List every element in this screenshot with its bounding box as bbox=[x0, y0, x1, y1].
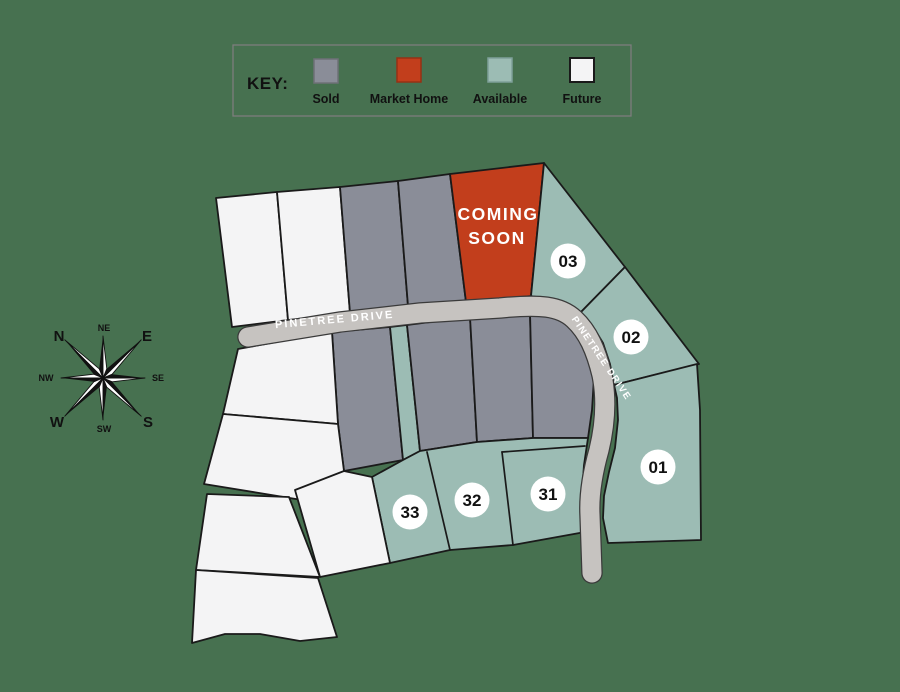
site-plan: COMING SOON PINETREE DRIVE PINETREE DRIV… bbox=[0, 0, 900, 692]
key-swatch-sold bbox=[314, 59, 338, 83]
key-title: KEY: bbox=[247, 74, 288, 93]
lot-33-number: 33 bbox=[401, 503, 420, 522]
lot-01-number: 01 bbox=[649, 458, 668, 477]
compass-ne: NE bbox=[98, 323, 111, 333]
lot-31-badge[interactable]: 31 bbox=[531, 477, 566, 512]
compass-nw: NW bbox=[39, 373, 54, 383]
key-swatch-future bbox=[570, 58, 594, 82]
compass-sw: SW bbox=[97, 424, 112, 434]
lot-coming-soon[interactable]: COMING SOON bbox=[450, 163, 544, 302]
lot-02-number: 02 bbox=[622, 328, 641, 347]
lot-32-badge[interactable]: 32 bbox=[455, 483, 490, 518]
key-label-sold: Sold bbox=[312, 92, 339, 106]
key-label-available: Available bbox=[473, 92, 527, 106]
compass-w: W bbox=[50, 414, 65, 431]
compass-e: E bbox=[142, 328, 152, 345]
coming-soon-line2: SOON bbox=[468, 228, 526, 248]
lot-33-badge[interactable]: 33 bbox=[393, 495, 428, 530]
lot-future-top-2 bbox=[277, 187, 350, 320]
compass-se: SE bbox=[152, 373, 164, 383]
coming-soon-line1: COMING bbox=[458, 204, 539, 224]
lot-sold-top-1 bbox=[340, 181, 408, 313]
lot-32-number: 32 bbox=[463, 491, 482, 510]
key-swatch-available bbox=[488, 58, 512, 82]
lot-31-number: 31 bbox=[539, 485, 558, 504]
compass-s: S bbox=[143, 414, 153, 431]
compass-star-icon bbox=[61, 336, 145, 420]
lot-03-badge[interactable]: 03 bbox=[551, 244, 586, 279]
lot-sold-mid-3 bbox=[470, 312, 533, 442]
key-label-market-home: Market Home bbox=[370, 92, 449, 106]
lot-sold-mid-2 bbox=[407, 317, 477, 451]
lot-01-badge[interactable]: 01 bbox=[641, 450, 676, 485]
lot-03-number: 03 bbox=[559, 252, 578, 271]
key-swatch-market-home bbox=[397, 58, 421, 82]
key-label-future: Future bbox=[563, 92, 602, 106]
lot-future-left-5 bbox=[192, 570, 337, 643]
lot-02-badge[interactable]: 02 bbox=[614, 320, 649, 355]
compass-n: N bbox=[54, 328, 65, 345]
